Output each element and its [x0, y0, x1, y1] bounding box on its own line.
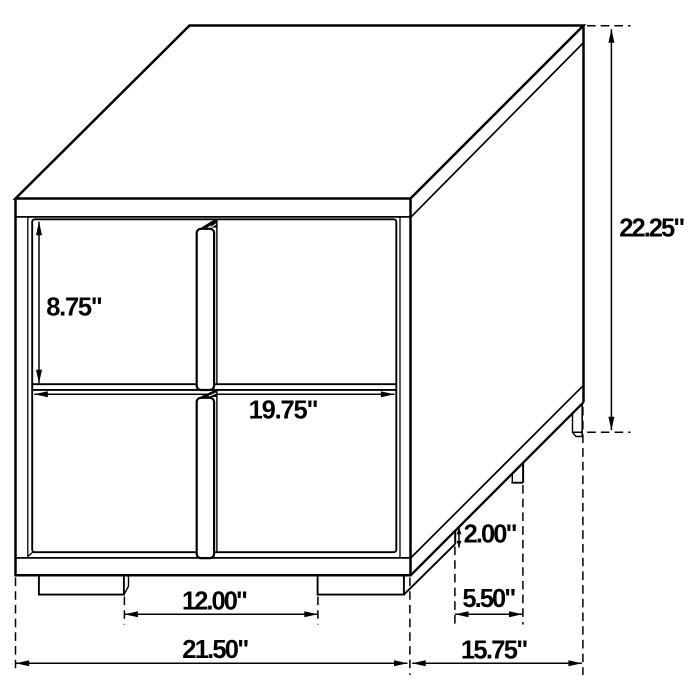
svg-text:12.00": 12.00"	[182, 588, 248, 616]
svg-text:5.50": 5.50"	[462, 585, 516, 613]
svg-text:22.25": 22.25"	[619, 214, 685, 242]
svg-text:2.00": 2.00"	[464, 520, 518, 548]
svg-text:21.50": 21.50"	[182, 636, 249, 664]
svg-text:15.75": 15.75"	[461, 637, 529, 665]
svg-text:8.75": 8.75"	[46, 293, 103, 321]
svg-text:19.75": 19.75"	[249, 397, 319, 425]
